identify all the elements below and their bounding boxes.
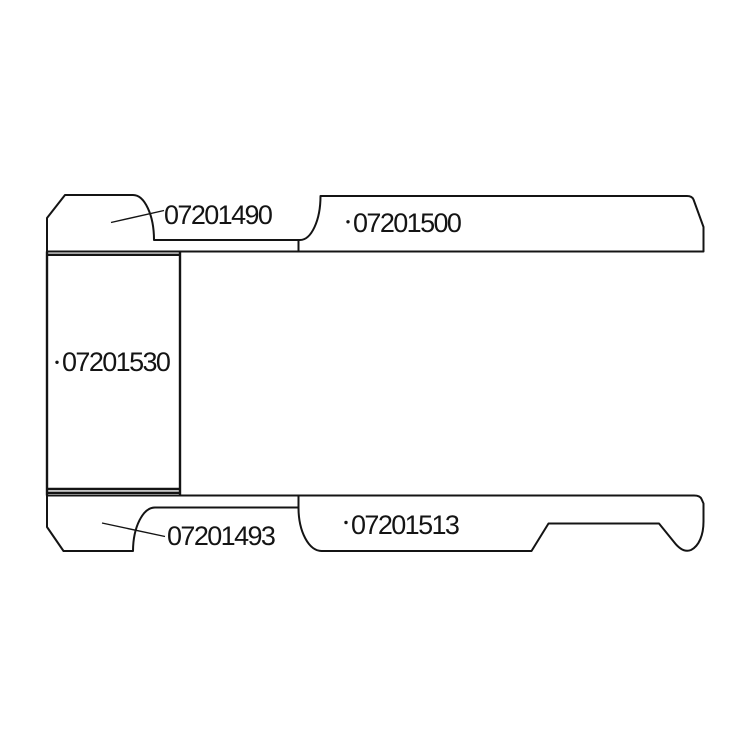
leader-dot-left-rectangle-panel bbox=[55, 361, 58, 364]
part-number-label-top-right: 07201500 bbox=[353, 210, 460, 237]
part-number-label-bottom-right: 07201513 bbox=[351, 512, 458, 539]
leader-line-top-left-panel bbox=[111, 211, 164, 223]
parts-diagram: 07201490 07201500 07201530 07201493 0720… bbox=[0, 0, 750, 750]
leader-dot-bottom-right-panel bbox=[344, 521, 347, 524]
leader-line-bottom-left-panel bbox=[102, 523, 165, 537]
part-number-label-top-left: 07201490 bbox=[164, 202, 271, 229]
part-number-label-middle-left: 07201530 bbox=[62, 349, 169, 376]
leader-dot-top-right-panel bbox=[346, 220, 349, 223]
part-number-label-bottom-left: 07201493 bbox=[167, 523, 274, 550]
